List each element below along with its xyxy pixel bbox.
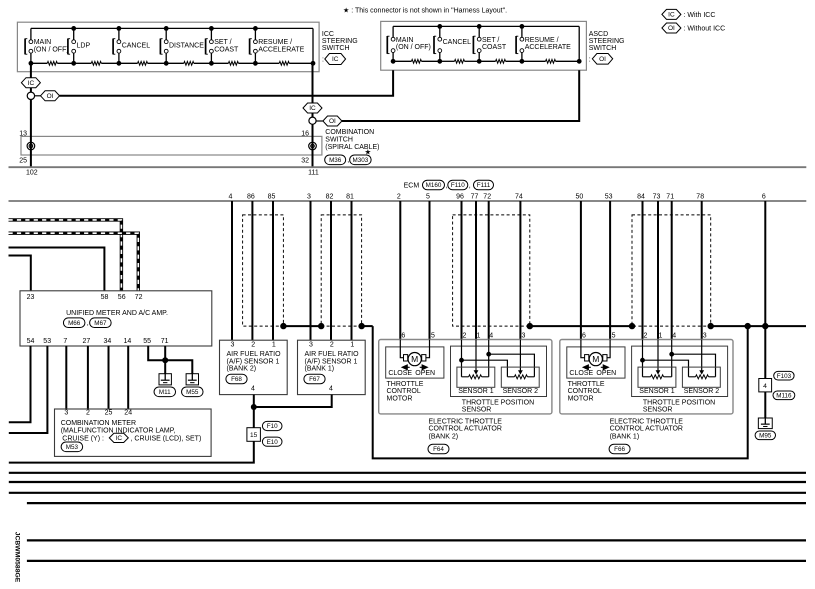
svg-text:72: 72 [135,294,143,301]
svg-text:COMBINATION METER: COMBINATION METER [61,420,136,427]
svg-text:IC: IC [668,12,675,19]
svg-text:96: 96 [456,193,464,200]
svg-text:M160: M160 [426,182,442,189]
svg-text:13: 13 [19,130,27,137]
svg-text:M66: M66 [68,320,81,327]
svg-text:5: 5 [431,333,435,340]
svg-text:M116: M116 [776,393,792,400]
svg-text:ELECTRIC THROTTLE: ELECTRIC THROTTLE [429,418,503,425]
svg-text:50: 50 [576,193,584,200]
svg-text:6: 6 [582,333,586,340]
svg-text:, CRUISE (LCD), SET): , CRUISE (LCD), SET) [131,435,202,442]
svg-text:4: 4 [229,193,233,200]
svg-text:UNIFIED METER AND A/C AMP.: UNIFIED METER AND A/C AMP. [66,310,168,317]
svg-text:ACCELERATE: ACCELERATE [525,44,571,51]
svg-text:(ON / OFF): (ON / OFF) [396,44,431,51]
svg-text:15: 15 [250,432,258,439]
svg-text:F67: F67 [309,376,320,383]
svg-text:6: 6 [762,193,766,200]
svg-text:IC: IC [332,56,339,63]
svg-text:SENSOR 2: SENSOR 2 [684,388,720,395]
svg-text:E10: E10 [267,439,279,446]
svg-text:7: 7 [63,338,67,345]
svg-text:58: 58 [101,294,109,301]
svg-text:RESUME /: RESUME / [525,37,559,44]
svg-text:25: 25 [19,157,27,164]
svg-text:4: 4 [329,386,333,393]
svg-text:CONTROL ACTUATOR: CONTROL ACTUATOR [429,426,502,433]
svg-text::: : [589,57,591,64]
svg-text:M95: M95 [759,433,772,440]
svg-text:53: 53 [605,193,613,200]
svg-text:M303: M303 [353,157,369,164]
svg-text:CANCEL: CANCEL [122,42,151,49]
svg-text:MOTOR: MOTOR [387,395,413,402]
svg-text:3: 3 [307,193,311,200]
svg-text:CANCEL: CANCEL [443,39,472,46]
svg-text:2: 2 [463,333,467,340]
svg-text:4: 4 [251,386,255,393]
svg-text:14: 14 [124,338,132,345]
svg-text:F111: F111 [477,182,491,189]
svg-text:ACCELERATE: ACCELERATE [258,47,304,54]
svg-text:MAIN: MAIN [34,39,52,46]
svg-text:(A/F) SENSOR 1: (A/F) SENSOR 1 [227,358,280,365]
svg-text:71: 71 [161,338,169,345]
svg-text:77: 77 [471,193,479,200]
svg-text:SENSOR: SENSOR [462,406,492,413]
svg-text:M36: M36 [329,157,342,164]
svg-text:(BANK 1): (BANK 1) [305,366,335,373]
svg-text:SWITCH: SWITCH [325,137,353,144]
svg-text:COAST: COAST [482,44,507,51]
svg-text:THROTTLE POSITION: THROTTLE POSITION [643,399,715,406]
svg-text:86: 86 [247,193,255,200]
svg-text:1: 1 [477,333,481,340]
svg-text:84: 84 [637,193,645,200]
svg-text:ECM: ECM [404,183,420,190]
svg-text:F64: F64 [433,446,444,453]
svg-text:SWITCH: SWITCH [322,45,350,52]
svg-text:CLOSE: CLOSE [388,370,412,377]
svg-text:SENSOR 1: SENSOR 1 [458,388,494,395]
svg-text:OI: OI [599,56,606,63]
svg-text:M53: M53 [66,444,79,451]
svg-text:CONTROL ACTUATOR: CONTROL ACTUATOR [610,426,683,433]
svg-text:COMBINATION: COMBINATION [325,129,374,136]
svg-text:73: 73 [653,193,661,200]
svg-text:M67: M67 [94,320,107,327]
svg-text:CONTROL: CONTROL [387,388,421,395]
svg-text:ELECTRIC THROTTLE: ELECTRIC THROTTLE [610,418,684,425]
svg-text:2: 2 [330,342,334,349]
svg-text:72: 72 [483,193,491,200]
svg-text:111: 111 [308,170,319,177]
svg-text:AIR FUEL RATIO: AIR FUEL RATIO [227,351,282,358]
svg-text:55: 55 [143,338,151,345]
svg-text:IC: IC [309,105,316,112]
svg-text:3: 3 [64,410,68,417]
svg-text:F68: F68 [231,376,242,383]
svg-text:4: 4 [672,333,676,340]
svg-text:(ON / OFF): (ON / OFF) [34,47,69,54]
svg-text:85: 85 [268,193,276,200]
svg-text:,: , [87,320,89,327]
svg-text:THROTTLE: THROTTLE [387,381,424,388]
svg-text:78: 78 [696,193,704,200]
svg-text:(BANK 2): (BANK 2) [227,366,257,373]
svg-text:F10: F10 [267,423,278,430]
svg-text:(BANK 2): (BANK 2) [429,433,459,440]
svg-text:ICC: ICC [322,31,334,38]
svg-text:16: 16 [301,130,309,137]
svg-text:IC: IC [28,80,35,87]
svg-text:RESUME /: RESUME / [258,39,292,46]
svg-text:(SPIRAL CABLE): (SPIRAL CABLE) [325,144,379,151]
svg-text:SET /: SET / [482,37,499,44]
svg-text:3: 3 [703,333,707,340]
svg-text:1: 1 [659,333,663,340]
svg-text:1: 1 [350,342,354,349]
svg-text:OI: OI [47,93,54,100]
svg-text:STEERING: STEERING [322,38,358,45]
svg-text:CONTROL: CONTROL [568,388,602,395]
svg-text:2: 2 [397,193,401,200]
svg-text:(BANK 1): (BANK 1) [610,433,640,440]
svg-text:6: 6 [401,333,405,340]
svg-text:M: M [592,354,599,364]
svg-text:25: 25 [105,410,113,417]
svg-text:3: 3 [309,342,313,349]
svg-text:24: 24 [124,410,132,417]
svg-text:(A/F) SENSOR 1: (A/F) SENSOR 1 [305,358,358,365]
svg-text:SENSOR: SENSOR [643,406,673,413]
svg-text:,: , [347,157,349,164]
svg-text:2: 2 [86,410,90,417]
svg-text:3: 3 [521,333,525,340]
svg-text:4: 4 [763,383,767,390]
svg-text:34: 34 [104,338,112,345]
svg-text:MOTOR: MOTOR [568,395,594,402]
svg-text:F103: F103 [777,373,792,380]
svg-text:5: 5 [612,333,616,340]
svg-text:32: 32 [301,157,309,164]
svg-text:MAIN: MAIN [396,37,414,44]
svg-text:★ : This connector is not show: ★ : This connector is not shown in "Harn… [343,7,507,15]
svg-text:CLOSE: CLOSE [569,370,593,377]
svg-text:THROTTLE POSITION: THROTTLE POSITION [462,399,534,406]
svg-text:56: 56 [118,294,126,301]
svg-text:OI: OI [329,118,336,125]
svg-text:SWITCH: SWITCH [589,45,617,52]
svg-text:102: 102 [26,170,38,177]
svg-text:CRUISE (Y) :: CRUISE (Y) : [62,435,104,442]
svg-text:JCBWM0588GE: JCBWM0588GE [13,532,20,583]
svg-text:4: 4 [489,333,493,340]
svg-text:M55: M55 [186,389,199,396]
svg-text:IC: IC [116,435,123,442]
svg-text:SENSOR 2: SENSOR 2 [503,388,539,395]
svg-text:AIR FUEL RATIO: AIR FUEL RATIO [305,351,360,358]
svg-text:M: M [411,354,418,364]
svg-text:3: 3 [231,342,235,349]
svg-text:OI: OI [668,25,675,32]
svg-text:SET /: SET / [214,39,231,46]
svg-text:5: 5 [426,193,430,200]
svg-text:53: 53 [43,338,51,345]
svg-text:,: , [445,182,447,189]
svg-text:: With ICC: : With ICC [684,12,716,19]
svg-text:OPEN: OPEN [596,370,616,377]
svg-text:THROTTLE: THROTTLE [568,381,605,388]
svg-text:2: 2 [251,342,255,349]
svg-text:F66: F66 [614,446,625,453]
svg-text:74: 74 [515,193,523,200]
svg-text:: Without ICC: : Without ICC [684,25,726,32]
svg-text:LDP: LDP [77,42,91,49]
svg-text:23: 23 [27,294,35,301]
svg-text:71: 71 [666,193,674,200]
svg-text:F110: F110 [451,182,465,189]
svg-text:82: 82 [326,193,334,200]
svg-text:81: 81 [346,193,354,200]
svg-text:1: 1 [272,342,276,349]
svg-text::: : [322,57,324,64]
svg-text:STEERING: STEERING [589,38,625,45]
svg-text:,: , [469,182,471,189]
svg-text:OPEN: OPEN [415,370,435,377]
svg-text:27: 27 [83,338,91,345]
svg-text:M11: M11 [159,389,171,396]
svg-text:DISTANCE: DISTANCE [169,42,204,49]
svg-text:COAST: COAST [214,47,239,54]
svg-text:54: 54 [27,338,35,345]
svg-text:ASCD: ASCD [589,31,608,38]
svg-text:SENSOR 1: SENSOR 1 [639,388,675,395]
svg-text:2: 2 [644,333,648,340]
